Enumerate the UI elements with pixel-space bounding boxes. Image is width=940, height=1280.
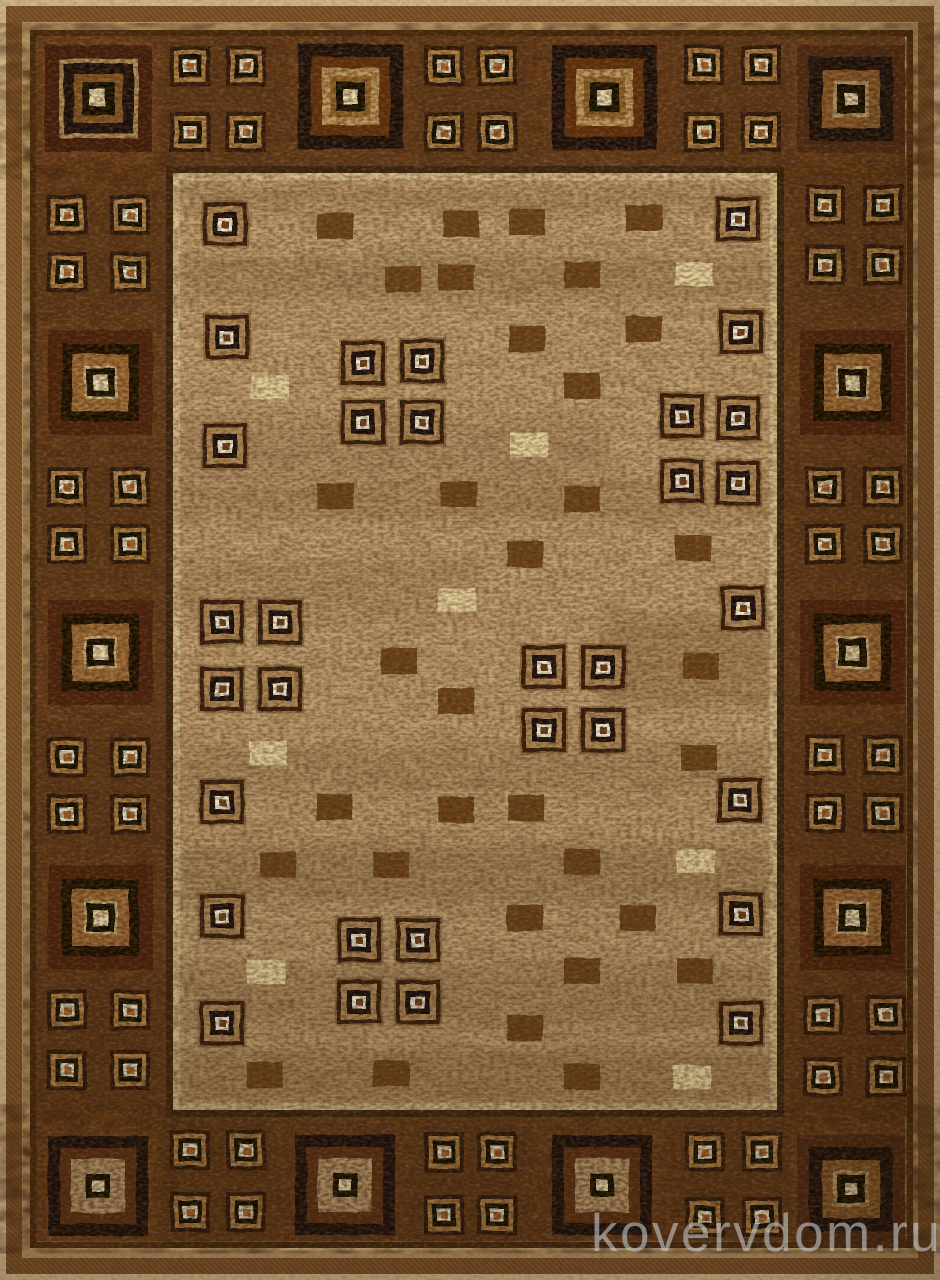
- svg-text:kovervdom.ru: kovervdom.ru: [591, 1204, 940, 1263]
